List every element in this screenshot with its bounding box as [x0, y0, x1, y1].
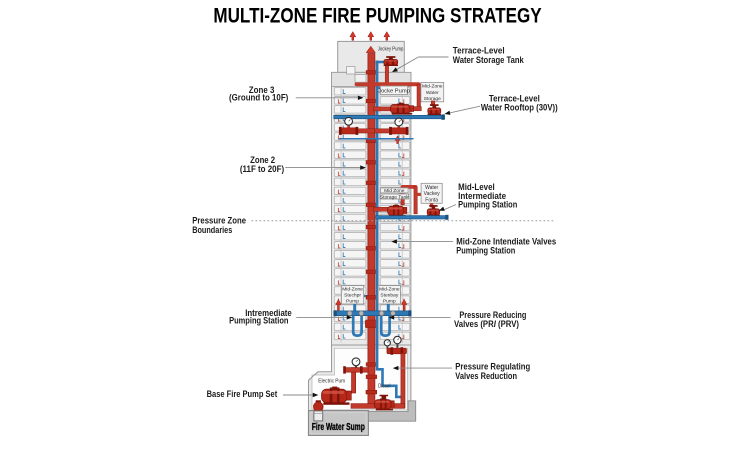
svg-text:Storage Tank: Storage Tank: [380, 194, 409, 200]
svg-text:Fonta: Fonta: [425, 197, 438, 203]
svg-text:(Ground to 10F): (Ground to 10F): [229, 93, 288, 104]
svg-text:Pumping Station: Pumping Station: [229, 315, 289, 326]
svg-text:Base Fire Pump Set: Base Fire Pump Set: [207, 389, 278, 400]
svg-text:Pump: Pump: [346, 299, 359, 305]
svg-text:Valves (PRI (PRV): Valves (PRI (PRV): [454, 319, 519, 330]
svg-text:MULTI-ZONE FIRE PUMPING STRATE: MULTI-ZONE FIRE PUMPING STRATEGY: [213, 5, 541, 28]
svg-text:Stechpr: Stechpr: [344, 293, 361, 299]
svg-text:Water: Water: [426, 90, 439, 96]
svg-text:Pumping Station: Pumping Station: [456, 246, 515, 257]
svg-text:Mid Zone: Mid Zone: [384, 188, 405, 194]
svg-text:Stenbay: Stenbay: [380, 293, 399, 299]
svg-text:Mid-Zone: Mid-Zone: [379, 287, 400, 293]
svg-text:Water Rooftop (30V)): Water Rooftop (30V)): [481, 102, 558, 113]
svg-text:Jocke Pump: Jocke Pump: [378, 88, 410, 94]
svg-text:Boundaries: Boundaries: [192, 225, 232, 236]
svg-text:Valves Reduction: Valves Reduction: [455, 371, 517, 382]
svg-text:Pumping Station: Pumping Station: [458, 199, 517, 210]
svg-text:Water: Water: [425, 185, 438, 191]
svg-text:Jockey Pump: Jockey Pump: [378, 47, 404, 53]
svg-text:Electric Pum: Electric Pum: [318, 379, 345, 385]
svg-text:Pump: Pump: [383, 299, 396, 305]
svg-text:Vackey: Vackey: [424, 191, 441, 197]
svg-text:(11F to 20F): (11F to 20F): [240, 164, 284, 175]
svg-text:Fire Water Sump: Fire Water Sump: [312, 422, 365, 433]
svg-text:Mid-Zone: Mid-Zone: [342, 287, 363, 293]
svg-text:Mid-Zone: Mid-Zone: [422, 84, 443, 90]
svg-text:Diesel: Diesel: [378, 384, 390, 390]
svg-text:Water Storage Tank: Water Storage Tank: [453, 55, 525, 66]
